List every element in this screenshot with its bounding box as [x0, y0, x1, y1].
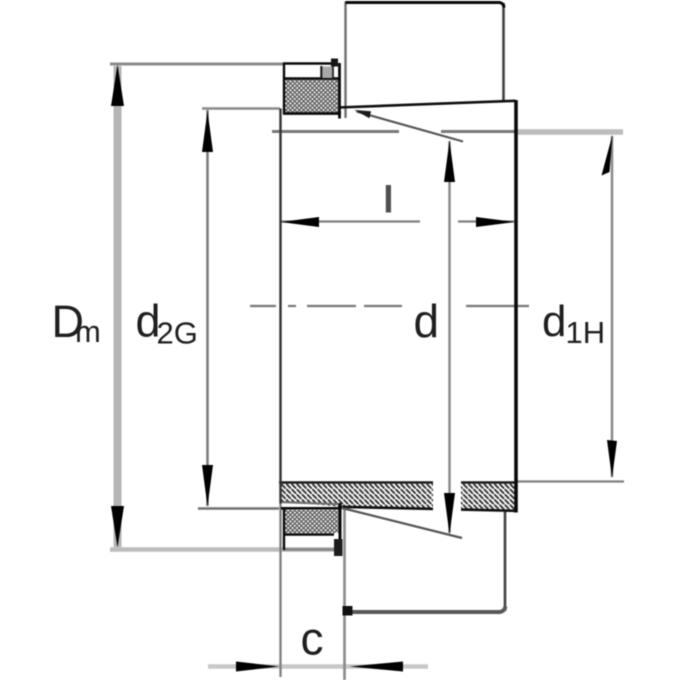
svg-text:m: m — [75, 314, 101, 349]
svg-text:1H: 1H — [566, 315, 606, 350]
svg-text:c: c — [301, 613, 324, 665]
svg-text:d: d — [414, 295, 440, 347]
svg-text:d: d — [542, 297, 566, 346]
svg-text:2G: 2G — [157, 316, 198, 351]
